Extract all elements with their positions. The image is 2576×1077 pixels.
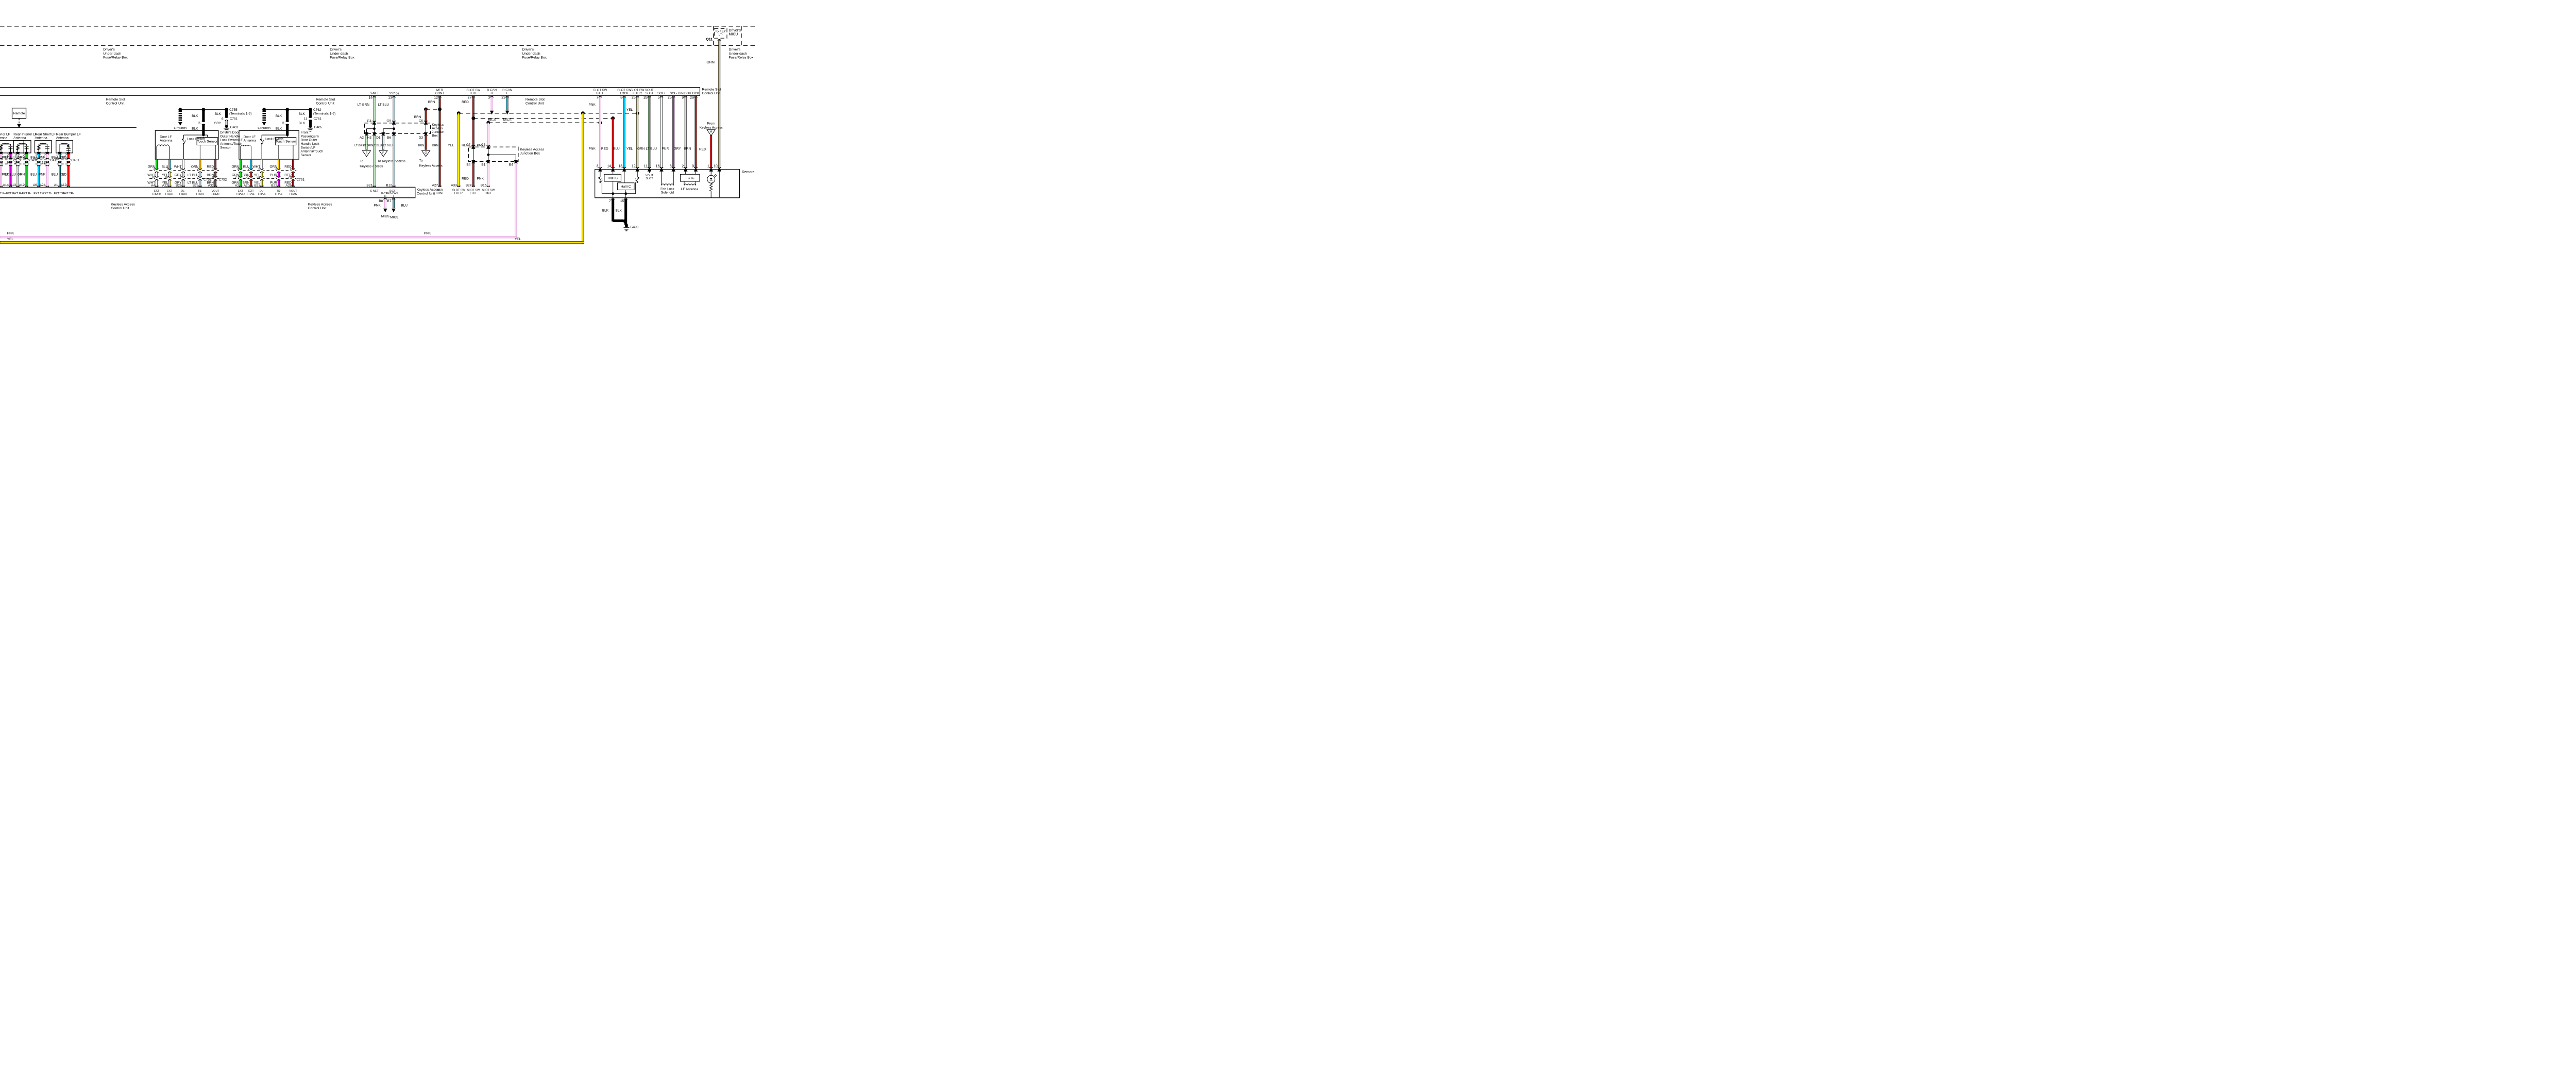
rscu-label-1: Remote SlotControl Unit: [106, 98, 125, 106]
grounds-symbol-passenger: [262, 115, 266, 116]
antenna-2-label: Rear Interior LFAntenna: [13, 133, 37, 140]
wire-break: [292, 170, 295, 172]
drivers-door-label: Driver's DoorOuter HandleLock Switch/LFA…: [220, 131, 243, 149]
label: B26: [176, 184, 182, 188]
grounds-symbol-passenger: [262, 111, 266, 112]
label: BRN: [432, 144, 438, 147]
label: To: [360, 159, 363, 163]
wire-break: [286, 122, 289, 124]
label: PNK: [7, 231, 14, 235]
fuse-relay-label-4: Driver'sUnder-dashFuse/Relay Box: [728, 48, 753, 60]
label: VOUTSLOT: [645, 89, 654, 96]
label: 7: [248, 167, 250, 171]
wire-break: [260, 177, 263, 180]
din-dout-wire: [685, 97, 686, 167]
label: G9: [386, 120, 391, 123]
label: 7: [609, 199, 611, 203]
label: From: [707, 122, 715, 126]
wire: [156, 172, 157, 178]
rscu-label-2: Remote SlotControl Unit: [316, 98, 335, 106]
label: 2: [682, 164, 684, 168]
label: 3: [596, 164, 598, 168]
label: A4: [151, 184, 155, 188]
label: 25: [288, 175, 292, 179]
antenna-4-box: [56, 141, 73, 153]
wire: [240, 159, 241, 170]
grounds-symbol-passenger: [262, 117, 266, 119]
fob-lock-solenoid-label: Fob LockSolenoid: [660, 187, 674, 194]
label: 12: [434, 96, 438, 100]
switch-icon: [637, 181, 638, 183]
label: 11: [304, 117, 308, 121]
wire: [382, 136, 384, 150]
label: A2: [235, 184, 239, 188]
wire-break: [277, 177, 280, 180]
q11-connector-label: Q11: [706, 38, 713, 42]
label: 1: [290, 167, 292, 171]
label: SLOT SWHALF: [593, 89, 607, 96]
label: Keyless Access: [360, 164, 383, 168]
label: LT BLU: [383, 144, 393, 147]
label: 2: [275, 167, 277, 171]
wire: [292, 172, 294, 178]
label: B-CANL: [502, 89, 512, 96]
label: A6: [33, 183, 37, 187]
yel-bottom-riser: [582, 113, 584, 244]
grounds-symbol-driver: [179, 113, 182, 114]
wire: [156, 179, 157, 186]
antenna-3-label: Rear Shelf LFAntenna: [35, 133, 56, 140]
label: C401: [71, 159, 79, 162]
label: 21: [235, 175, 240, 179]
label: 16: [656, 164, 660, 168]
wire: [309, 120, 312, 126]
label: 9: [682, 96, 684, 100]
wire: [487, 163, 489, 186]
label: A27: [432, 183, 438, 187]
label: BLK: [299, 122, 306, 125]
label: A29: [285, 184, 292, 188]
switch-icon: [185, 140, 185, 142]
label: SLOT SWLOCK: [617, 89, 631, 96]
wire-break: [182, 177, 185, 180]
label: PNK: [589, 147, 596, 150]
label: Grounds: [174, 127, 187, 130]
coil-icon: [684, 184, 696, 186]
wire-break: [249, 170, 252, 172]
label: Hall IC: [607, 176, 618, 180]
wire: [199, 159, 201, 170]
label: LT BLU: [5, 173, 16, 176]
fuse-relay-label-3: Driver'sUnder-dashFuse/Relay Box: [522, 48, 547, 60]
label: SOL-: [670, 92, 677, 95]
junction-box-1-label: KeylessAccessJunctionBox: [432, 123, 445, 138]
label: D3: [419, 136, 423, 140]
junction-dot: [202, 133, 205, 136]
label: 29: [690, 96, 694, 100]
label: YEL: [515, 238, 521, 241]
label: 5: [198, 122, 200, 125]
label: RED: [462, 177, 469, 180]
label: BLK: [192, 114, 198, 118]
label: Keyless Access: [700, 126, 723, 130]
wire: [169, 159, 171, 170]
label: S-NET: [369, 92, 379, 95]
vout-slot-wire: [649, 97, 650, 167]
label: SLOT SWFULL: [466, 89, 480, 96]
label: B-CANH: [381, 192, 389, 198]
label: C761: [313, 117, 321, 121]
from-keyless-red-wire: [710, 136, 712, 167]
label: Hall IC: [621, 185, 631, 189]
label: SS2 (-): [389, 92, 399, 95]
label: 22: [246, 175, 250, 179]
label: 3: [153, 167, 155, 171]
slot-sw-full2-drop: [458, 113, 460, 186]
label: B22: [271, 184, 277, 188]
label: 8: [620, 96, 622, 100]
wire-break: [155, 170, 158, 172]
reference-letter: G: [425, 152, 427, 155]
label: BLK: [276, 114, 282, 118]
wire-break: [260, 170, 263, 172]
label: LT BLU: [5, 156, 16, 159]
label: G4: [367, 120, 371, 123]
label: RED: [60, 173, 67, 176]
coil-icon: [662, 184, 673, 186]
label: RED: [699, 147, 706, 151]
wire: [425, 136, 427, 150]
label: 7: [166, 167, 168, 171]
g401-ground: [225, 125, 228, 128]
grounds-symbol-driver: [179, 115, 182, 116]
label: 16: [151, 175, 156, 179]
grounds-symbol-driver: [179, 117, 182, 119]
passenger-door-label: FrontPassenger'sDoor OuterHandle LockSwi…: [300, 131, 323, 157]
wire: [425, 109, 427, 122]
label: BRN: [684, 147, 691, 150]
wire: [278, 159, 279, 170]
c755-label: C755(Terminals 1-6): [229, 108, 251, 116]
label: D1: [376, 136, 381, 140]
kacu-label-2: Keyless AccessControl Unit: [308, 203, 333, 210]
label: B12: [386, 183, 392, 187]
resistor-icon: [38, 145, 40, 150]
sol-minus-wire: [673, 97, 674, 167]
led-icon: [709, 178, 713, 180]
wire: [202, 110, 205, 122]
label: BRN: [418, 144, 425, 147]
label: Remote: [13, 112, 25, 115]
label: MICS: [390, 215, 399, 219]
label: EXT R+: [13, 192, 23, 195]
led-icon: [714, 174, 716, 176]
label: B23: [255, 184, 261, 188]
label: A32: [208, 184, 214, 188]
wire: [240, 179, 241, 186]
label: BLU: [401, 204, 408, 207]
coil-icon: [241, 145, 250, 146]
label: GRY: [674, 147, 682, 150]
label: BLK: [602, 209, 609, 212]
arrowhead-down-icon: [383, 209, 387, 213]
label: EXTFRDR+: [152, 190, 162, 196]
label: SLOT SWHALF: [482, 189, 495, 195]
label: 14: [607, 164, 611, 168]
label: GRN: [18, 173, 25, 176]
wire: [226, 120, 227, 126]
fuse-relay-label-1: Driver'sUnder-dashFuse/Relay Box: [103, 48, 128, 60]
wire: [202, 124, 205, 135]
label: EXTFRDR-: [165, 190, 174, 196]
wire: [215, 172, 216, 178]
fuse-relay-label-2: Driver'sUnder-dashFuse/Relay Box: [330, 48, 354, 60]
label: BLK: [299, 112, 306, 116]
wire: [250, 159, 252, 170]
switch-icon: [599, 178, 602, 181]
rscu-label-4: Remote SlotControl Unit: [702, 88, 721, 96]
label: LT GRN: [363, 144, 374, 147]
label: 6: [180, 167, 182, 171]
g405-label: G405: [314, 126, 322, 129]
label: MTRCONT: [436, 189, 444, 195]
wire: [278, 179, 279, 186]
label: A14: [3, 183, 9, 187]
wire: [261, 159, 263, 170]
ig-key-label: IG KEYLT-: [716, 30, 726, 37]
g401-label: G401: [230, 126, 239, 129]
label: GRY: [214, 122, 222, 125]
ss2-wire: [393, 97, 395, 122]
label: 25: [668, 96, 672, 100]
label: 14: [368, 96, 372, 100]
label: Touch Sensor: [276, 140, 297, 143]
label: BRN: [428, 100, 435, 104]
label: Door LFAntenna: [160, 136, 173, 143]
label: VOUTFRDR: [212, 190, 220, 196]
label: A19: [61, 183, 67, 187]
label: PNK: [374, 204, 381, 207]
led-icon: [715, 175, 717, 177]
label: DCK: [692, 92, 699, 95]
wire-break: [202, 122, 205, 124]
wire: [169, 172, 171, 178]
grounds-symbol-passenger: [262, 113, 266, 114]
label: 10: [714, 164, 718, 168]
g403-ground: [625, 224, 628, 227]
wire-break: [309, 117, 312, 120]
label: 1: [212, 167, 214, 171]
wire: [199, 172, 201, 178]
label: C751: [230, 117, 238, 121]
dck-wire: [695, 97, 697, 167]
label: EXT R-: [22, 192, 31, 195]
wire-break: [249, 177, 252, 180]
reference-letter: F: [382, 152, 384, 155]
label: B-CANL: [389, 192, 398, 198]
sol-plus-wire: [660, 97, 662, 167]
wire: [199, 179, 201, 186]
label: BLU: [30, 173, 37, 176]
wire: [309, 110, 312, 118]
wiring-diagram: IG KEYLT-Driver'sMICUQ11Driver'sUnder-da…: [0, 0, 756, 270]
wire: [250, 172, 252, 178]
label: 12: [632, 164, 636, 168]
switch-icon: [602, 178, 602, 181]
yel-bottom-run: [0, 241, 584, 243]
label: FC IC: [686, 176, 694, 180]
label: SLOT SWFULL2: [452, 189, 465, 195]
label: Door LFAntenna: [244, 136, 257, 143]
label: BLU: [52, 173, 58, 176]
wire: [613, 220, 623, 222]
label: 6: [259, 167, 261, 171]
label: Keyless Access: [419, 164, 443, 167]
reference-letter: A: [710, 131, 712, 134]
wire-break: [277, 170, 280, 172]
wire-break: [214, 177, 217, 180]
label: 5: [658, 96, 660, 100]
label: EXT TR-: [63, 192, 74, 195]
label: A24: [40, 183, 46, 187]
label: To Keyless Access: [378, 159, 406, 163]
label: 13: [388, 96, 392, 100]
label: EXTFRAS+: [236, 190, 245, 196]
wire-break: [182, 170, 185, 172]
arrowhead-down-icon: [505, 111, 510, 115]
wire: [292, 179, 294, 186]
label: EXT F+: [0, 192, 6, 195]
label: PNK: [477, 177, 484, 180]
grounds-symbol-driver: [178, 122, 182, 126]
wire: [292, 159, 294, 170]
switch-icon: [263, 140, 264, 142]
label: PNK: [424, 231, 431, 235]
bcan-l-mics-wire: [506, 97, 508, 110]
wire: [384, 199, 386, 208]
label: VOUTSLOT: [646, 174, 654, 180]
label: MTRCONT: [435, 89, 444, 96]
label: 11: [644, 164, 648, 168]
wire-break: [225, 117, 228, 120]
wire-break: [292, 177, 295, 180]
label: B21: [366, 183, 372, 187]
label: YEL: [7, 238, 14, 241]
wire: [182, 179, 184, 186]
wire-break: [168, 170, 171, 172]
label: 1: [707, 164, 709, 168]
label: H3: [367, 136, 372, 140]
label: 15: [164, 175, 168, 179]
wire: [261, 179, 263, 186]
wire-break: [239, 177, 242, 180]
wire: [215, 159, 216, 170]
label: B8: [379, 199, 383, 203]
junction-dot: [487, 154, 489, 156]
label: 15: [620, 199, 624, 203]
label: LT BLU: [378, 103, 389, 107]
label: MICS: [503, 119, 512, 122]
wire: [250, 179, 252, 186]
ig-key-box: [715, 28, 727, 38]
label: A20: [244, 184, 250, 188]
label: DL-FRAS: [258, 190, 266, 196]
junction-dot: [393, 127, 395, 130]
label: 3: [237, 167, 239, 171]
label: B6: [387, 136, 391, 140]
wire: [286, 124, 289, 135]
coil-icon: [158, 145, 169, 146]
label: B-CANH: [487, 89, 497, 96]
label: LT GRN: [358, 103, 370, 107]
label: A33: [451, 183, 457, 187]
slot-sw-lock-wire: [623, 97, 625, 167]
label: PNK: [477, 144, 484, 147]
label: YEL: [626, 147, 633, 150]
slot-sw-full-wire: [472, 97, 474, 146]
arrowhead-down-icon: [490, 111, 494, 115]
label: Touch Sensor: [197, 140, 218, 143]
remote-slot-label: Remote Slot: [742, 171, 756, 174]
label: B1: [481, 163, 485, 166]
label: 8: [670, 164, 672, 168]
keyless-junction-box-2: [469, 147, 518, 161]
blk-ground-wire-1: [612, 199, 614, 221]
grounds-symbol-driver: [179, 111, 182, 112]
label: B27: [466, 183, 472, 187]
label: 2: [197, 167, 199, 171]
label: DIN/DOUT: [678, 92, 693, 95]
antenna-1-label: Interior LFAntenna: [0, 133, 10, 140]
label: B7: [387, 199, 392, 203]
reference-letter: E: [365, 152, 367, 155]
wire: [278, 172, 279, 178]
label: 6: [222, 117, 224, 121]
label: 27: [468, 96, 472, 100]
wire: [182, 159, 184, 170]
label: SLOT SWFULL: [467, 189, 480, 195]
label: 9: [692, 164, 694, 168]
resistor-icon: [16, 145, 19, 150]
g403-label: G403: [630, 225, 638, 229]
label: A22: [162, 184, 168, 188]
wire: [169, 179, 171, 186]
label: PUR: [662, 147, 669, 150]
label: PNK: [589, 103, 596, 107]
label: 28: [643, 96, 648, 100]
label: RED: [462, 144, 469, 147]
bcan-h-mics-wire: [491, 97, 493, 110]
wire-break: [168, 177, 171, 180]
label: 26: [632, 96, 636, 100]
orn-wire: [719, 40, 720, 169]
label: BLK: [215, 112, 222, 116]
slot-sw-half-wire: [599, 97, 601, 167]
kacu-label-1: Keyless AccessControl Unit: [111, 203, 135, 210]
wire: [261, 172, 263, 178]
label: A1: [54, 183, 58, 187]
antenna-4-label: Rear Bumper LFAntenna: [56, 133, 81, 140]
label: YEL: [626, 108, 633, 112]
wire: [374, 136, 375, 186]
label: RED: [601, 147, 608, 150]
wire-break: [198, 170, 201, 172]
label: 1: [180, 175, 182, 179]
label: BLK: [616, 209, 622, 212]
label: B4: [466, 163, 470, 166]
label: A2: [360, 136, 364, 140]
label: SOL+: [657, 92, 666, 95]
